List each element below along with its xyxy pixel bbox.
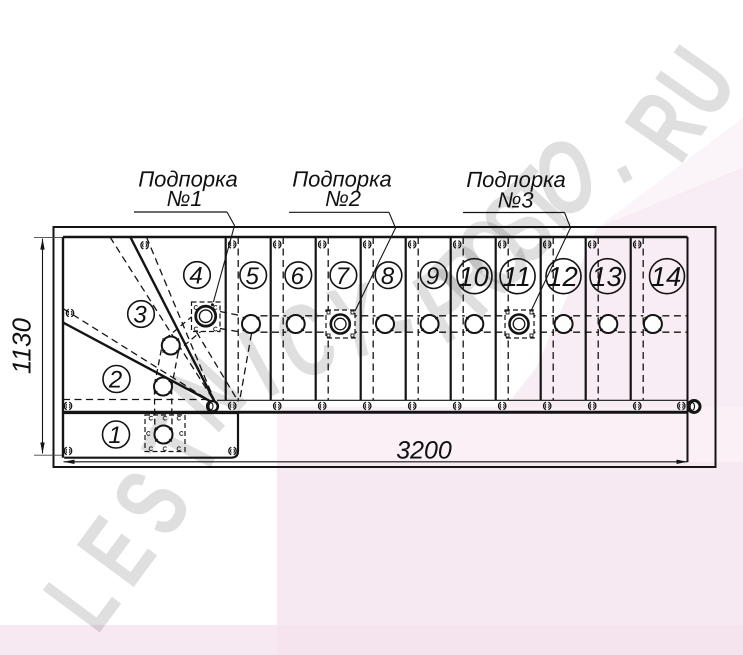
svg-text:14: 14 (651, 261, 682, 292)
svg-text:11: 11 (502, 261, 531, 292)
svg-text:3200: 3200 (396, 437, 452, 465)
svg-text:№2: №2 (325, 186, 361, 211)
svg-text:№3: №3 (497, 188, 534, 213)
svg-text:7: 7 (336, 263, 351, 290)
svg-text:13: 13 (591, 261, 622, 292)
svg-text:5: 5 (246, 263, 260, 290)
svg-text:№1: №1 (166, 186, 202, 211)
svg-text:1130: 1130 (7, 318, 37, 374)
svg-text:2: 2 (108, 367, 122, 394)
svg-text:6: 6 (291, 263, 305, 290)
svg-text:12: 12 (547, 261, 578, 292)
svg-text:3: 3 (133, 302, 147, 329)
svg-text:4: 4 (189, 263, 202, 290)
svg-text:10: 10 (458, 261, 489, 292)
svg-text:1: 1 (108, 422, 121, 449)
svg-text:9: 9 (426, 263, 439, 290)
svg-text:8: 8 (381, 263, 395, 290)
